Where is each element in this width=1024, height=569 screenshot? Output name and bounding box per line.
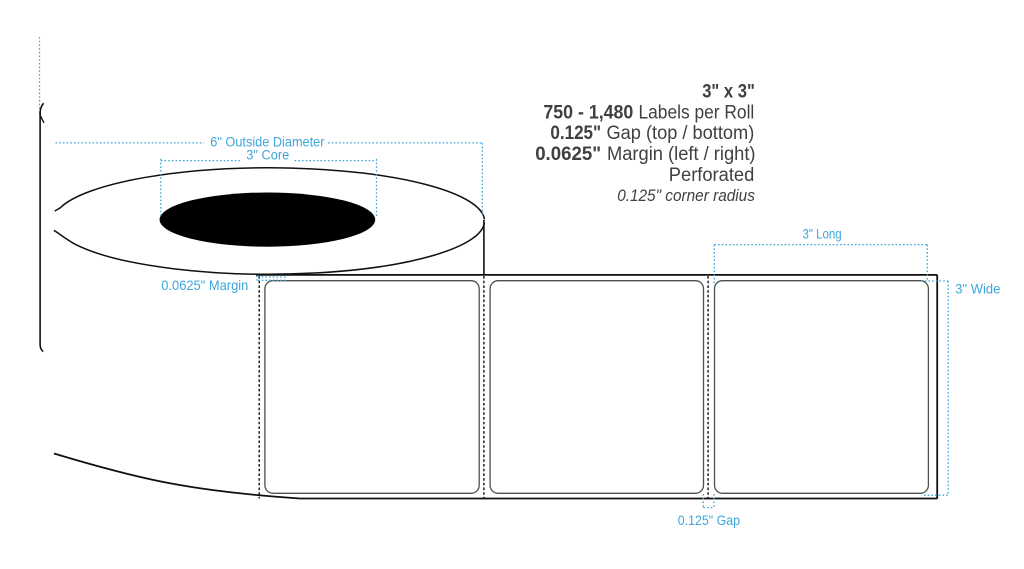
svg-text:Margin (left / right): Margin (left / right) [607, 144, 756, 165]
svg-text:3" x 3": 3" x 3" [702, 82, 755, 103]
svg-text:3" Core: 3" Core [246, 147, 289, 162]
svg-text:Gap (top / bottom): Gap (top / bottom) [607, 123, 755, 144]
svg-text:750 - 1,480: 750 - 1,480 [543, 102, 633, 123]
svg-text:3" Wide: 3" Wide [955, 282, 1000, 297]
svg-text:0.125": 0.125" [550, 123, 601, 144]
svg-text:3" Long: 3" Long [803, 227, 842, 242]
svg-text:Labels per Roll: Labels per Roll [639, 102, 755, 123]
svg-text:0.0625" Margin: 0.0625" Margin [161, 278, 248, 293]
svg-text:0.125" corner radius: 0.125" corner radius [617, 187, 755, 205]
svg-text:0.125" Gap: 0.125" Gap [678, 513, 740, 528]
svg-text:0.0625": 0.0625" [535, 144, 601, 165]
svg-text:Perforated: Perforated [669, 165, 755, 186]
